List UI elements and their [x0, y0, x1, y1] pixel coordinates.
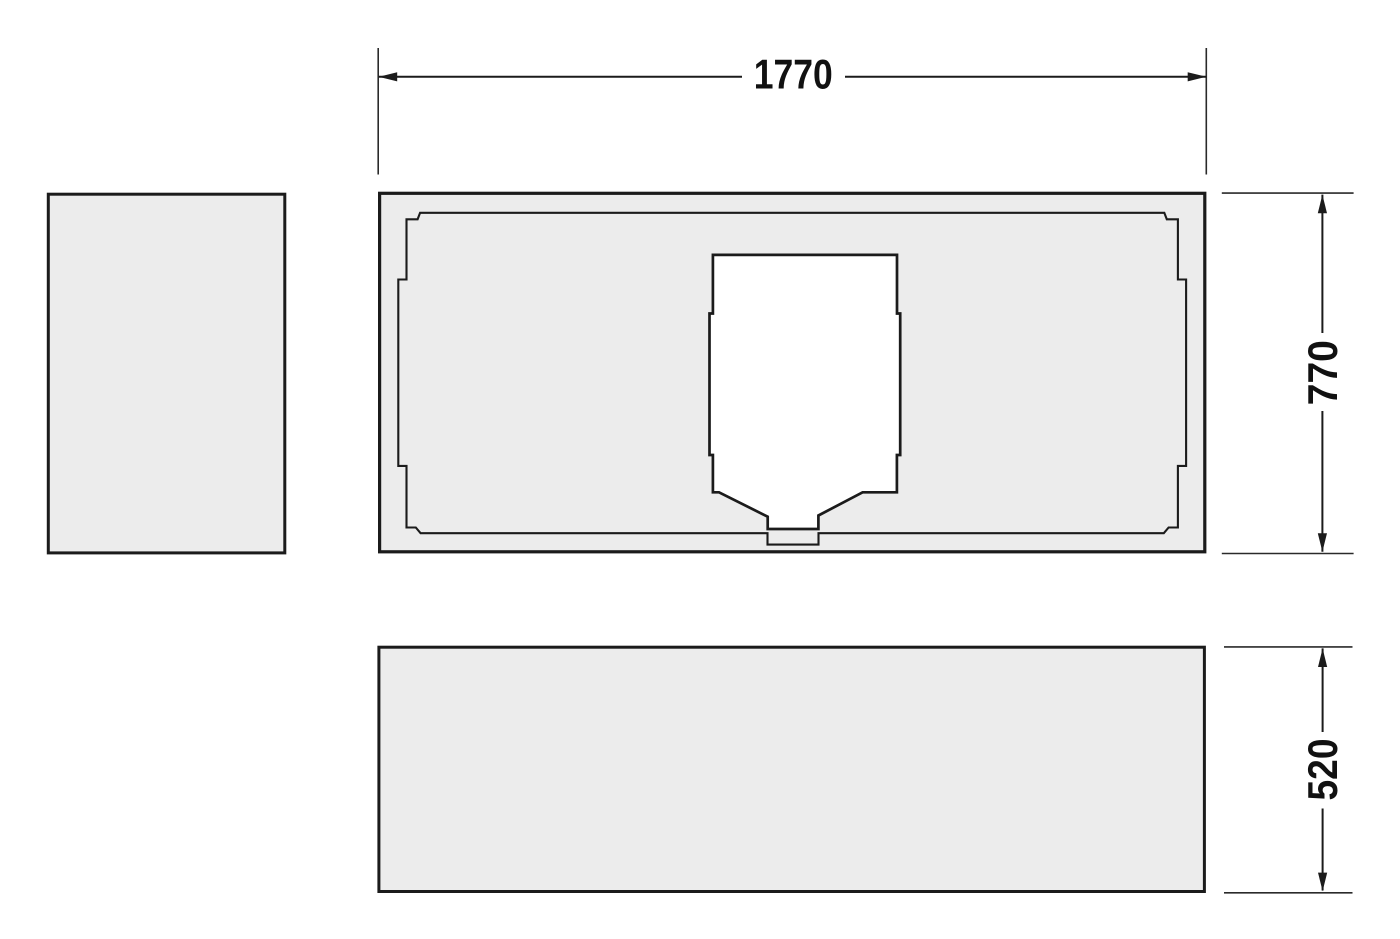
svg-text:770: 770 [1299, 340, 1346, 405]
svg-text:520: 520 [1299, 739, 1346, 801]
svg-text:1770: 1770 [754, 51, 833, 98]
